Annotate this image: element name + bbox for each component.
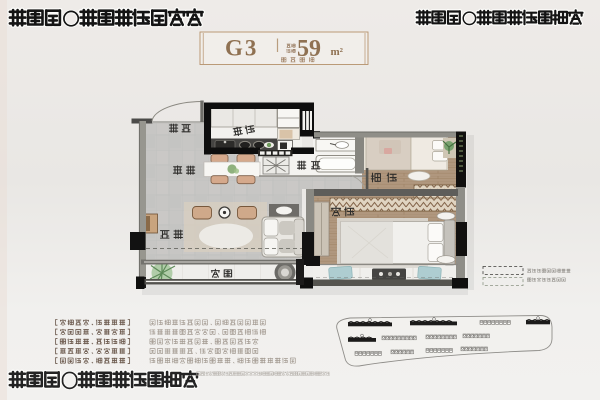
svg-text:59: 59 bbox=[297, 36, 321, 62]
svg-text:G3: G3 bbox=[225, 36, 258, 61]
svg-text:m²: m² bbox=[331, 46, 344, 58]
